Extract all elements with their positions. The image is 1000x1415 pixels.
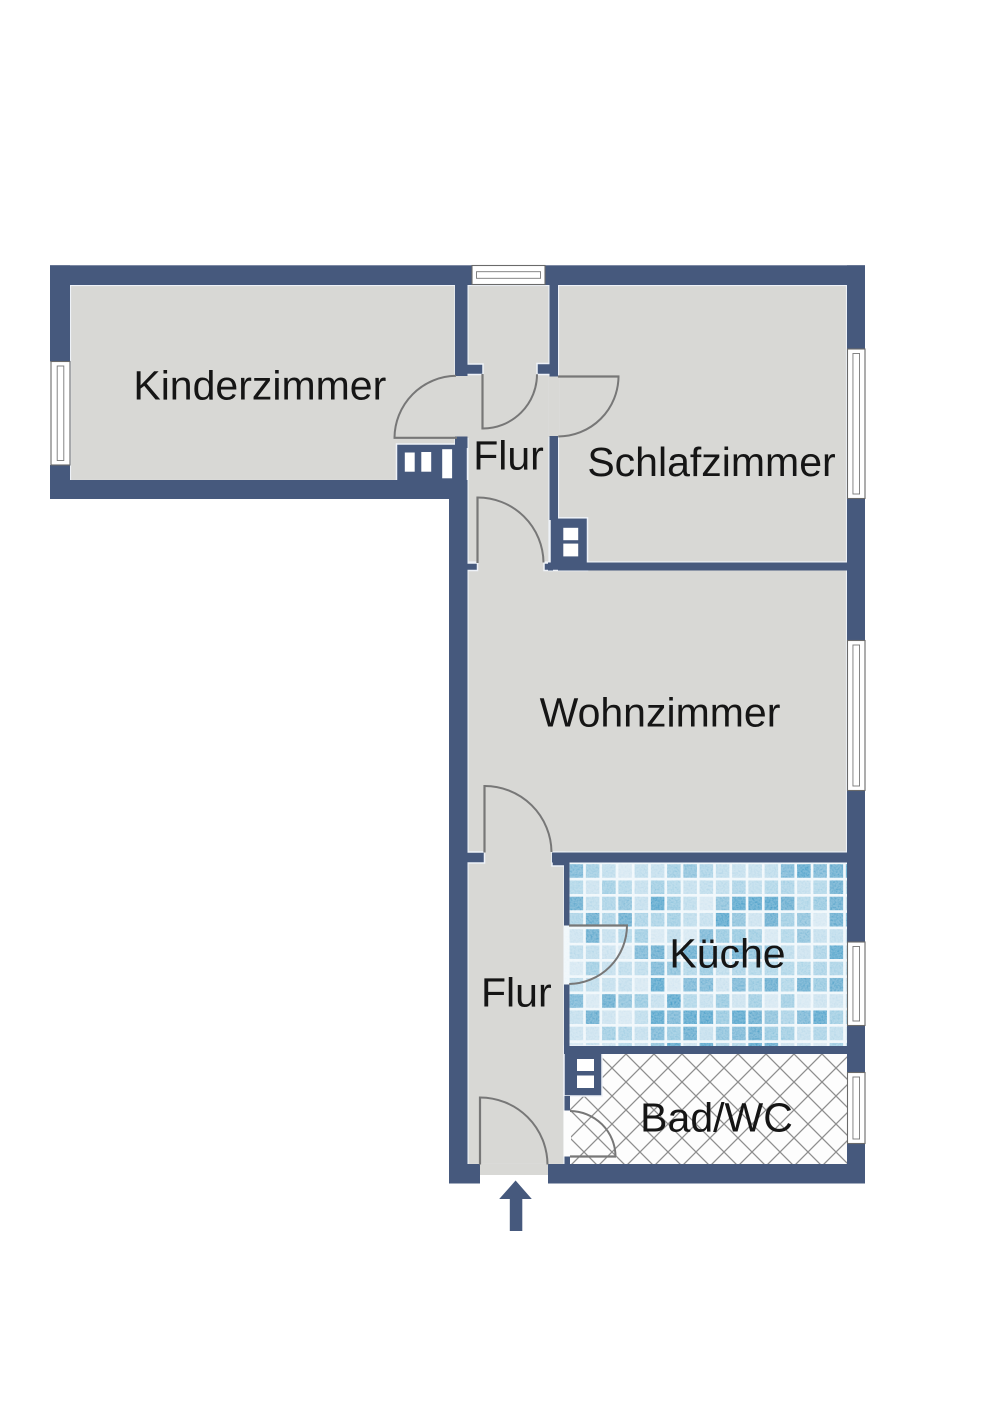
svg-text:Schlafzimmer: Schlafzimmer [587, 439, 835, 485]
svg-text:Wohnzimmer: Wohnzimmer [540, 689, 781, 735]
svg-text:Flur: Flur [473, 433, 544, 479]
svg-text:Bad/WC: Bad/WC [640, 1094, 793, 1140]
svg-text:Küche: Küche [669, 930, 785, 976]
svg-text:Kinderzimmer: Kinderzimmer [133, 362, 386, 408]
svg-text:Flur: Flur [481, 970, 552, 1016]
